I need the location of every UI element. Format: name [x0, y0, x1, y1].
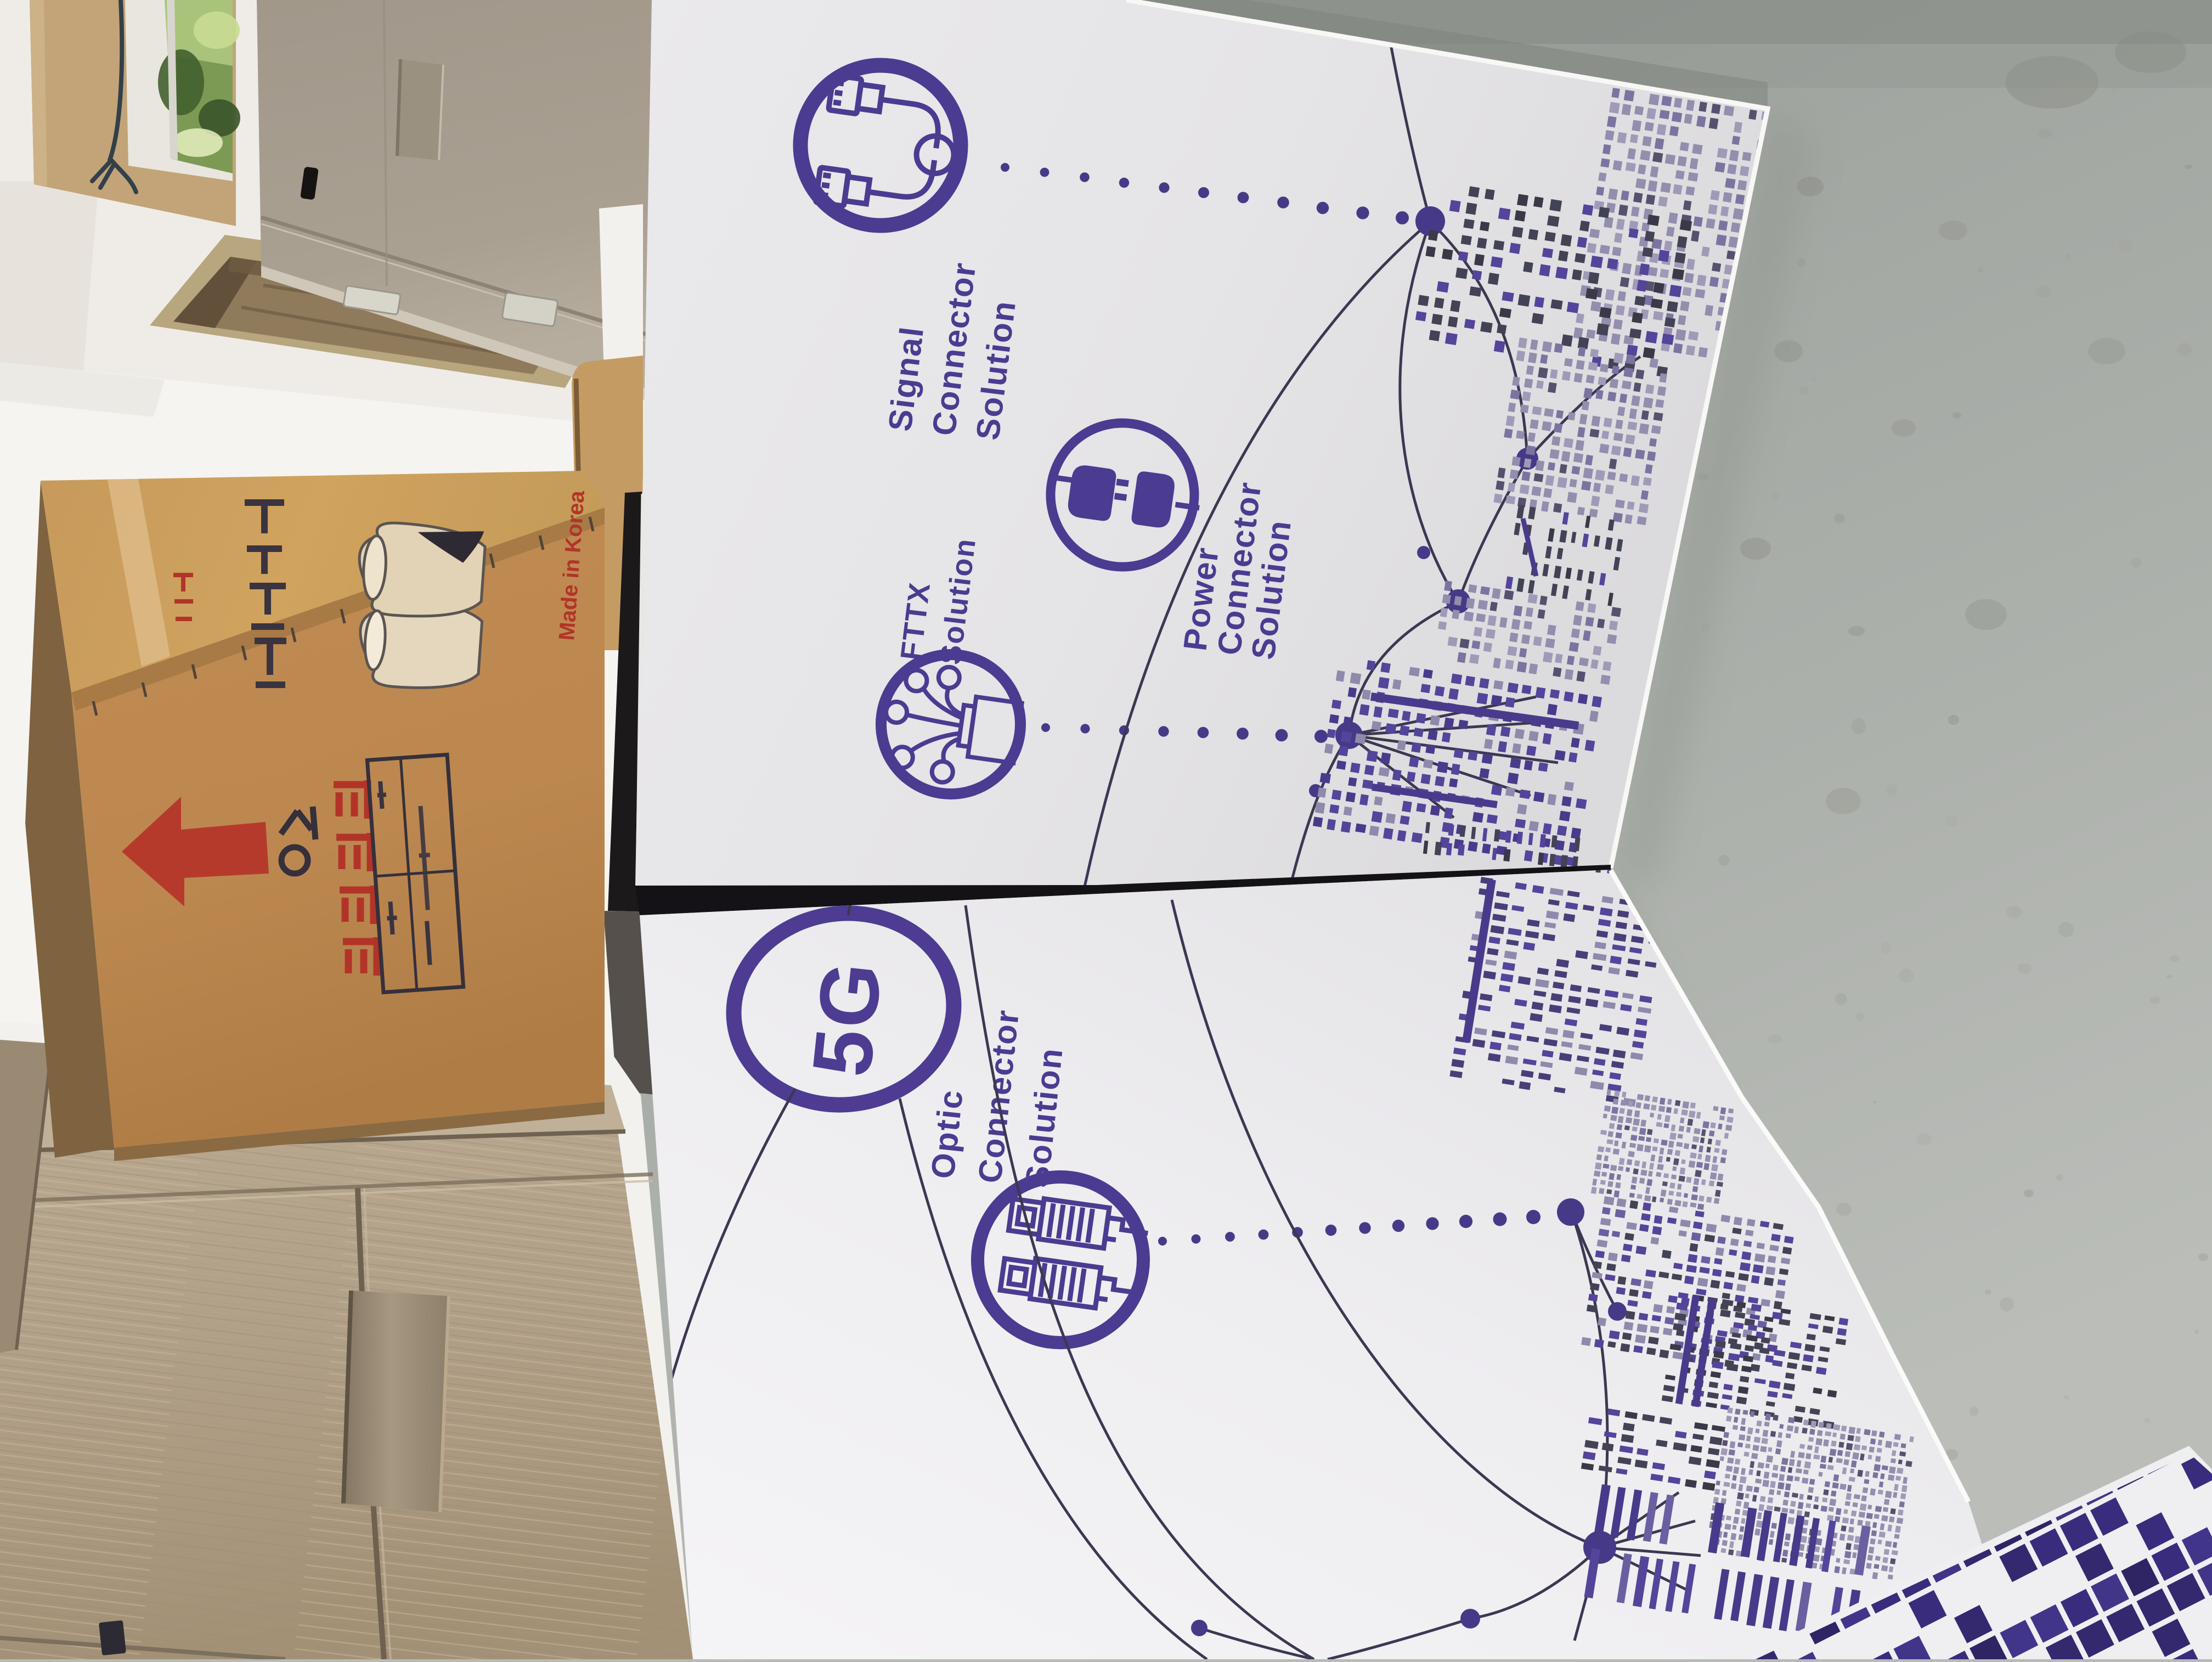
svg-text:5G: 5G	[795, 956, 900, 1080]
